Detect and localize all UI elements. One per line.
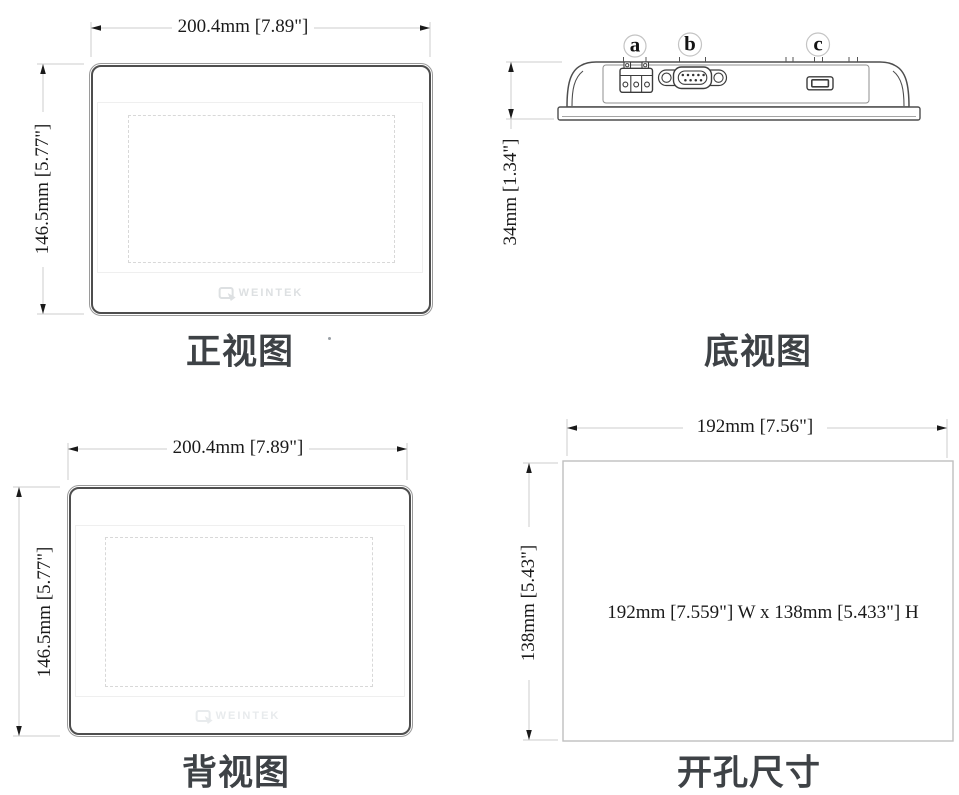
bottom-height-dimension <box>506 62 562 129</box>
port-label-b: b <box>684 31 696 56</box>
back-height-label: 146.5mm [5.77"] <box>33 542 57 683</box>
db9-serial-icon <box>659 67 727 89</box>
weintek-logo-text: WEINTEK <box>239 288 304 299</box>
housing-body <box>567 62 909 107</box>
drawing-canvas: WEINTEK 200.4mm [7.89"] 146.5mm [5.77"] … <box>0 0 959 795</box>
bottom-height-label: 34mm [1.34"] <box>499 134 523 251</box>
weintek-logo-icon <box>219 287 234 299</box>
stray-mark <box>328 337 331 340</box>
port-label-circles <box>624 33 830 57</box>
weintek-logo-text: WEINTEK <box>216 711 281 722</box>
front-active-area-dashed <box>128 115 395 263</box>
port-label-a: a <box>630 33 641 58</box>
micro-usb-icon <box>807 77 833 90</box>
bottom-view-title: 底视图 <box>704 324 812 375</box>
cutout-width-label: 192mm [7.56"] <box>692 415 818 439</box>
cutout-height-label: 138mm [5.43"] <box>517 540 541 666</box>
front-view-title: 正视图 <box>186 324 294 375</box>
bezel-plate <box>558 107 920 120</box>
port-label-c: c <box>813 31 822 56</box>
front-width-label: 200.4mm [7.89"] <box>173 15 314 39</box>
back-view-title: 背视图 <box>182 745 290 795</box>
bottom-view-drawing <box>506 33 920 129</box>
front-height-label: 146.5mm [5.77"] <box>31 119 55 260</box>
cutout-view-title: 开孔尺寸 <box>677 745 821 795</box>
back-width-label: 200.4mm [7.89"] <box>168 436 309 460</box>
back-active-area-dashed <box>105 537 373 687</box>
weintek-logo-back: WEINTEK <box>196 710 281 722</box>
cutout-size-note: 192mm [7.559"] W x 138mm [5.433"] H <box>602 601 923 625</box>
weintek-logo-icon <box>196 710 211 722</box>
weintek-logo: WEINTEK <box>219 287 304 299</box>
